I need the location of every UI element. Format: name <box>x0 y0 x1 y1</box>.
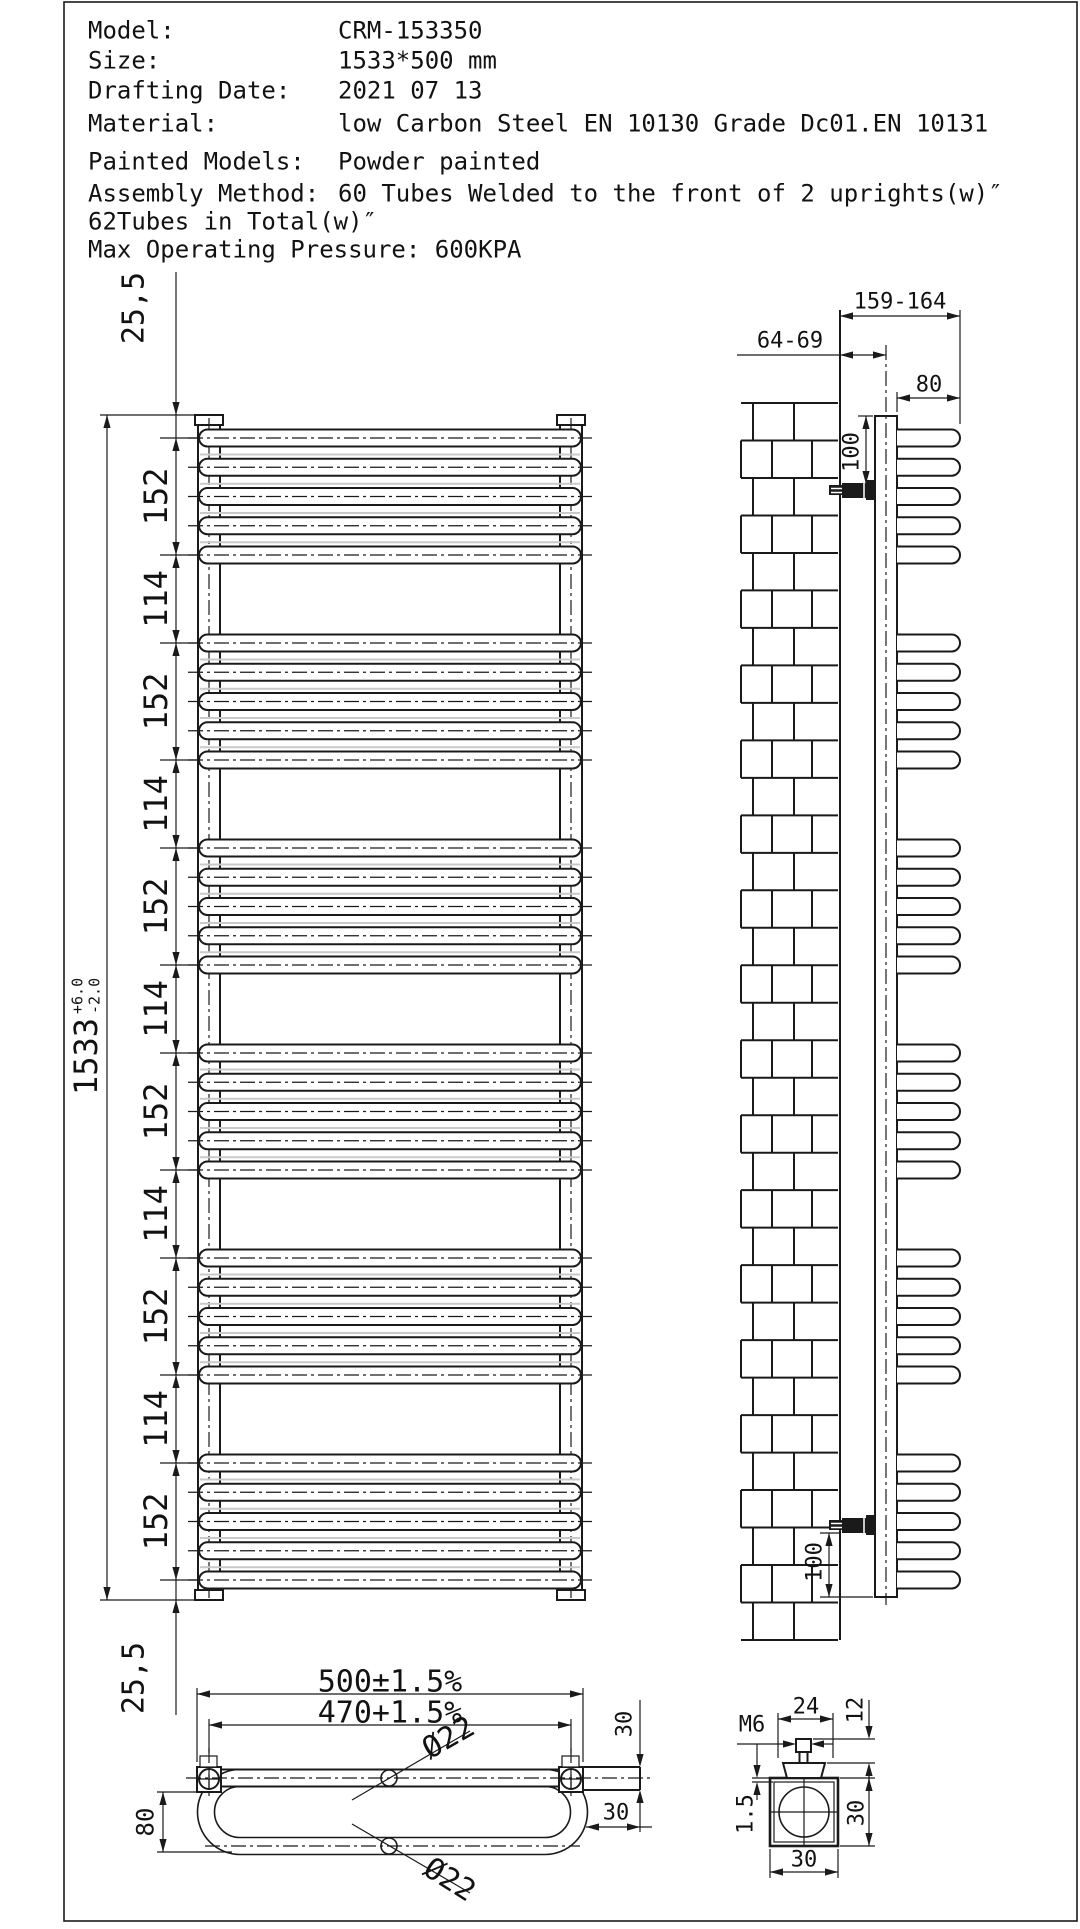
arrowhead <box>865 1763 872 1776</box>
dim-label: 80 <box>916 373 943 398</box>
arrowhead <box>873 351 886 358</box>
tube-loop <box>897 1103 960 1120</box>
arrowhead <box>172 1463 179 1476</box>
dim-label: 25,5 <box>117 272 152 344</box>
arrowhead <box>172 1362 179 1375</box>
arrowhead <box>586 1823 599 1830</box>
arrowhead <box>840 312 853 319</box>
arrowhead <box>172 965 179 978</box>
bracket-clamp-plate <box>866 480 875 500</box>
tube-loop <box>897 459 960 476</box>
tube-loop <box>897 693 960 710</box>
arrowhead <box>172 1258 179 1271</box>
arrowhead <box>636 1754 643 1767</box>
arrowhead <box>172 1600 179 1613</box>
arrowhead <box>172 630 179 643</box>
arrowhead <box>103 1587 110 1600</box>
arrowhead <box>570 1690 583 1697</box>
arrowhead <box>159 1839 166 1852</box>
title-label: Size: <box>88 46 160 74</box>
dim-label: 64-69 <box>757 329 823 354</box>
dim-label: 152 <box>137 468 175 526</box>
dim-label: 30 <box>603 1801 630 1826</box>
dim-label: 80 <box>131 1808 159 1837</box>
tube-loop <box>897 869 960 886</box>
title-label: Assembly Method: <box>88 179 319 207</box>
arrowhead <box>172 402 179 415</box>
arrowhead <box>172 555 179 568</box>
arrowhead <box>172 1375 179 1388</box>
dim-label: 114 <box>137 775 175 833</box>
dim-label: 30 <box>613 1711 638 1738</box>
arrowhead <box>862 416 869 429</box>
bracket-flange <box>783 1763 825 1778</box>
arrowhead <box>197 1690 210 1697</box>
dim-label: 100 <box>803 1542 828 1582</box>
dim-label: 12 <box>844 1697 869 1724</box>
arrowhead <box>865 1726 872 1739</box>
overall-dim-tol-plus: +6.0 <box>68 978 86 1014</box>
wall-bracket <box>842 1518 866 1533</box>
title-value: 1533*500 mm <box>338 46 497 74</box>
arrowhead <box>172 1567 179 1580</box>
arrowhead <box>172 542 179 555</box>
tube-loop <box>897 1308 960 1325</box>
tube-loop <box>897 664 960 681</box>
bracket-screw <box>829 485 842 495</box>
overall-dim-label: 1533+6.0-2.0 <box>67 978 105 1095</box>
title-label: Drafting Date: <box>88 76 290 104</box>
tube-loop <box>897 1484 960 1501</box>
arrowhead <box>172 1245 179 1258</box>
arrowhead <box>840 351 853 358</box>
tube-loop <box>897 1279 960 1296</box>
tube-loop <box>897 898 960 915</box>
dim-label: Ø22 <box>417 1851 482 1909</box>
arrowhead <box>770 1868 783 1875</box>
technical-drawing: Model:CRM-153350Size:1533*500 mmDrafting… <box>0 0 1080 1929</box>
title-label: Max Operating Pressure: 600KPA <box>88 235 522 263</box>
tube-loop <box>897 1542 960 1559</box>
tube-loop <box>897 1074 960 1091</box>
dim-label: 30 <box>845 1800 870 1827</box>
tube-loop <box>897 517 960 534</box>
dim-label: 152 <box>137 1493 175 1551</box>
arrowhead <box>947 394 960 401</box>
tube-loop <box>897 547 960 564</box>
side-view: 159-16464-6980100100 <box>737 290 960 1640</box>
dim-label: M6 <box>739 1713 766 1738</box>
overall-dim-nominal: 1533 <box>67 1018 105 1095</box>
title-value: low Carbon Steel EN 10130 Grade Dc01.EN … <box>338 109 988 137</box>
tube-loop <box>897 840 960 857</box>
dim-label: 114 <box>137 1390 175 1448</box>
dim-label: 152 <box>137 1288 175 1346</box>
m6-neck <box>800 1752 808 1763</box>
arrowhead <box>172 760 179 773</box>
title-label: Model: <box>88 16 175 44</box>
dim-label: 152 <box>137 1083 175 1141</box>
tube-loop <box>897 1572 960 1589</box>
arrowhead <box>209 1721 222 1728</box>
arrowhead <box>172 835 179 848</box>
title-value: 60 Tubes Welded to the front of 2 uprigh… <box>338 179 1003 207</box>
dim-label: 114 <box>137 1185 175 1243</box>
arrowhead <box>865 1833 872 1846</box>
tube-loop <box>897 927 960 944</box>
m6-stud <box>796 1739 811 1752</box>
arrowhead <box>753 1782 760 1795</box>
arrowhead <box>778 1715 791 1722</box>
bracket-clamp-plate <box>866 1515 875 1535</box>
dim-label: 159-164 <box>854 290 947 315</box>
tube-loop <box>897 722 960 739</box>
arrowhead <box>172 848 179 861</box>
title-value: 2021 07 13 <box>338 76 483 104</box>
dim-label: 500±1.5% <box>318 1665 463 1700</box>
title-value: CRM-153350 <box>338 16 483 44</box>
front-view: 1533+6.0-2.025,525,515215215215215215211… <box>67 272 592 1715</box>
title-block: Model:CRM-153350Size:1533*500 mmDrafting… <box>88 16 1003 263</box>
arrowhead <box>172 438 179 451</box>
tube-loop <box>897 1367 960 1384</box>
wall-bracket <box>842 483 866 498</box>
title-label: Painted Models: <box>88 147 305 175</box>
dim-label: 30 <box>791 1848 818 1873</box>
arrowhead <box>947 312 960 319</box>
arrowhead <box>825 1584 832 1597</box>
tube-loop <box>897 1162 960 1179</box>
arrowhead <box>172 1170 179 1183</box>
dim-label: 100 <box>840 432 865 472</box>
dim-label: 1.5 <box>734 1794 759 1834</box>
tube-loop <box>897 1250 960 1267</box>
title-label: Material: <box>88 109 218 137</box>
tube-loop <box>897 1045 960 1062</box>
plan-view: 500±1.5%470+1.5%Ø22Ø22803030 <box>131 1665 652 1910</box>
arrowhead <box>897 394 910 401</box>
bracket-screw <box>829 1520 842 1530</box>
tube-loop <box>897 957 960 974</box>
arrowhead <box>172 1053 179 1066</box>
tube-loop <box>897 1455 960 1472</box>
u-tube-outer <box>198 1770 588 1855</box>
dim-label: 152 <box>137 878 175 936</box>
arrowhead <box>558 1721 571 1728</box>
arrowhead <box>172 1157 179 1170</box>
arrowhead <box>172 643 179 656</box>
arrowhead <box>172 1040 179 1053</box>
arrowhead <box>825 1868 838 1875</box>
tube-loop <box>897 488 960 505</box>
dim-label: 25,5 <box>117 1642 152 1714</box>
tube-loop <box>897 752 960 769</box>
arrowhead <box>172 747 179 760</box>
arrowhead <box>865 1778 872 1791</box>
dim-label: 152 <box>137 673 175 731</box>
arrowhead <box>172 1450 179 1463</box>
dim-label: 114 <box>137 980 175 1038</box>
bracket-detail: 2412M61.53030 <box>734 1695 875 1878</box>
title-value: Powder painted <box>338 147 540 175</box>
drawing-sheet: Model:CRM-153350Size:1533*500 mmDrafting… <box>0 0 1080 1929</box>
arrowhead <box>820 1715 833 1722</box>
tube-loop <box>897 1513 960 1530</box>
arrowhead <box>811 1740 824 1747</box>
arrowhead <box>172 952 179 965</box>
dim-label: 114 <box>137 570 175 628</box>
tube-loop <box>897 1337 960 1354</box>
tube-loop <box>897 635 960 652</box>
tube-loop <box>897 1132 960 1149</box>
u-tube-inner <box>215 1787 571 1838</box>
arrowhead <box>103 415 110 428</box>
overall-dim-tol-minus: -2.0 <box>85 978 103 1014</box>
tube-loop <box>897 430 960 447</box>
arrowhead <box>783 1740 796 1747</box>
dim-label: 24 <box>793 1695 820 1720</box>
arrowhead <box>159 1792 166 1805</box>
arrowhead <box>753 1765 760 1778</box>
title-label: 62Tubes in Total(w)″ <box>88 207 377 235</box>
